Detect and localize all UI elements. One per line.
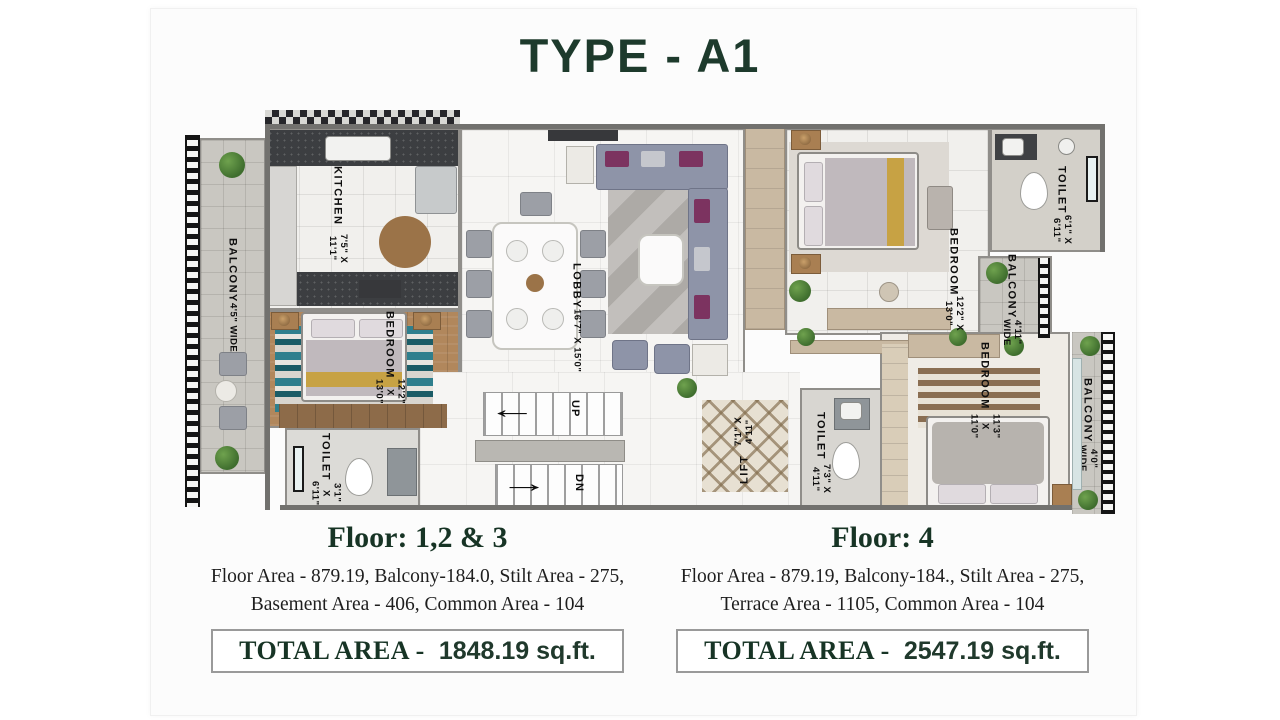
plant-icon <box>215 446 239 470</box>
plant-icon <box>789 280 811 302</box>
kitchen-sink <box>325 136 391 161</box>
total-area-box: TOTAL AREA - 2547.19 sq.ft. <box>676 629 1089 673</box>
balcony-chair <box>219 406 247 430</box>
floor-heading: Floor: 1,2 & 3 <box>185 521 650 555</box>
bedroom-wardrobe <box>882 344 908 508</box>
dining-chair <box>466 270 492 298</box>
balcony-table <box>215 380 237 402</box>
balcony-railing-left <box>185 135 200 507</box>
dresser <box>827 308 951 330</box>
plant-icon <box>797 328 815 346</box>
toilet-wc <box>345 458 373 496</box>
floor-areas-line1: Floor Area - 879.19, Balcony-184.0, Stil… <box>185 563 650 591</box>
bedroom-left-dims: 12'2" X 13'0" <box>373 379 406 404</box>
toilet-mid-label: TOILET <box>814 412 827 460</box>
dining-chair <box>466 230 492 258</box>
wash-basin <box>1002 138 1024 156</box>
ottoman <box>654 344 690 374</box>
hob <box>359 280 401 298</box>
nightstand <box>1052 484 1072 506</box>
stairs-landing <box>475 440 625 462</box>
plant-icon <box>677 378 697 398</box>
bedroom-bottom-right-label: BEDROOM <box>978 342 991 410</box>
ottoman <box>612 340 648 370</box>
balcony-right-top-label: BALCONY <box>1005 254 1018 319</box>
balcony-right-bottom-label: BALCONY <box>1081 378 1094 443</box>
bedroom-top-right-label: BEDROOM <box>947 228 960 296</box>
kitchen-round-rug <box>379 216 431 268</box>
window <box>1086 156 1098 202</box>
stairs-up-label: UP <box>569 400 581 417</box>
total-area-value: 2547.19 sq.ft. <box>904 637 1061 666</box>
kitchen-tall-unit <box>267 166 297 306</box>
kitchen-dims: 7'5" X 11'1" <box>326 225 348 272</box>
dining-chair <box>580 230 606 258</box>
stairs-up-arrow: ← <box>487 394 536 425</box>
dining-chair <box>466 310 492 338</box>
stairs-dn-arrow: → <box>499 468 548 499</box>
kitchen-label: KITCHEN <box>331 166 344 225</box>
wash-basin <box>840 402 862 420</box>
toilet-left-dims: 3'1" X 6'11" <box>309 481 342 506</box>
wall-bottom <box>280 505 1072 510</box>
floor-areas-line2: Basement Area - 406, Common Area - 104 <box>185 591 650 619</box>
shower-icon <box>1058 138 1075 155</box>
dining-chair <box>520 192 552 216</box>
lift: LIFT 7'1" X 4'11" <box>690 390 800 503</box>
toilet-top-right-dims: 6'1" X 6'11" <box>1050 214 1072 246</box>
tv-console <box>548 130 618 141</box>
toilet-top-right: TOILET 6'1" X 6'11" <box>990 128 1105 252</box>
lamp-icon <box>278 314 290 326</box>
plant-icon <box>1078 490 1098 510</box>
bedroom-bottom-right: BEDROOM 11'3" X 11'0" <box>880 332 1070 510</box>
toilet-mid: TOILET 7'3" X 4'11" <box>800 388 882 510</box>
balcony-left-dims: 4'5" WIDE <box>227 303 238 352</box>
total-area-label: TOTAL AREA - <box>704 636 890 666</box>
plant-icon <box>219 152 245 178</box>
refrigerator <box>415 166 457 214</box>
page-title: TYPE - A1 <box>0 28 1280 83</box>
sofa <box>596 144 728 190</box>
wall-top <box>265 124 1105 129</box>
toilet-left-label: TOILET <box>319 433 332 481</box>
bedroom-top-right-bed <box>797 152 919 250</box>
lift-label: LIFT <box>739 455 752 484</box>
lamp-icon <box>799 257 811 269</box>
lift-dims: 7'1" X 4'11" <box>734 408 756 455</box>
balcony-right-top: BALCONY 4'11" WIDE <box>978 256 1052 340</box>
bedroom-bottom-right-dims: 11'3" X 11'0" <box>968 410 1001 442</box>
kitchen: KITCHEN 7'5" X 11'1" <box>265 128 460 310</box>
total-area-label: TOTAL AREA - <box>239 636 425 666</box>
balcony-railing <box>1038 258 1050 338</box>
partition-cabinet <box>745 128 785 330</box>
balcony-left: BALCONY 4'5" WIDE <box>199 138 266 474</box>
floor-summaries: Floor: 1,2 & 3 Floor Area - 879.19, Balc… <box>185 521 1115 673</box>
window <box>293 446 304 492</box>
lobby-dims: 16'7" X 15'0" <box>571 309 582 372</box>
balcony-railing <box>1101 332 1115 514</box>
coffee-table <box>638 234 684 286</box>
floor-areas-line1: Floor Area - 879.19, Balcony-184., Stilt… <box>650 563 1115 591</box>
toilet-mid-dims: 7'3" X 4'11" <box>809 460 831 498</box>
toilet-top-right-label: TOILET <box>1055 166 1068 214</box>
toilet-wc <box>832 442 860 480</box>
wall-left <box>265 124 270 510</box>
window <box>1072 358 1082 490</box>
floor-heading: Floor: 4 <box>650 521 1115 555</box>
toilet-vanity <box>387 448 417 496</box>
stairs-dn-label: DN <box>573 474 585 492</box>
lamp-icon <box>799 133 811 145</box>
bedroom-left-label: BEDROOM <box>383 311 396 379</box>
sofa-side-table <box>692 344 728 376</box>
floor-summary-4: Floor: 4 Floor Area - 879.19, Balcony-18… <box>650 521 1115 673</box>
lamp-icon <box>420 314 432 326</box>
balcony-right-top-dims: 4'11" WIDE <box>1000 319 1022 346</box>
sofa-side-table <box>566 146 594 184</box>
toilet-left: TOILET 3'1" X 6'11" <box>285 428 420 507</box>
bedroom-left: BEDROOM 12'2" X 13'0" <box>265 310 460 428</box>
floor-areas-line2: Terrace Area - 1105, Common Area - 104 <box>650 591 1115 619</box>
floor-summary-123: Floor: 1,2 & 3 Floor Area - 879.19, Balc… <box>185 521 650 673</box>
floor-plan: BALCONY 4'5" WIDE KITCHEN 7'5" X 11'1" <box>185 110 1115 512</box>
sofa <box>688 188 728 340</box>
bedroom-top-right: BEDROOM 12'2" X 13'0" <box>785 128 990 335</box>
stool <box>879 282 899 302</box>
total-area-box: TOTAL AREA - 1848.19 sq.ft. <box>211 629 624 673</box>
bedroom-left-wardrobe <box>279 404 447 428</box>
lobby: LOBBY 16'7" X 15'0" <box>460 128 745 390</box>
wall-right <box>1100 124 1105 252</box>
total-area-value: 1848.19 sq.ft. <box>439 637 596 666</box>
lobby-label: LOBBY <box>570 263 583 309</box>
bedroom-top-right-dims: 12'2" X 13'0" <box>942 296 964 332</box>
plant-icon <box>1080 336 1100 356</box>
balcony-left-label: BALCONY <box>226 238 239 303</box>
balcony-right-bottom: BALCONY 4'0" WIDE <box>1072 332 1115 514</box>
bedroom-bench <box>927 186 953 230</box>
